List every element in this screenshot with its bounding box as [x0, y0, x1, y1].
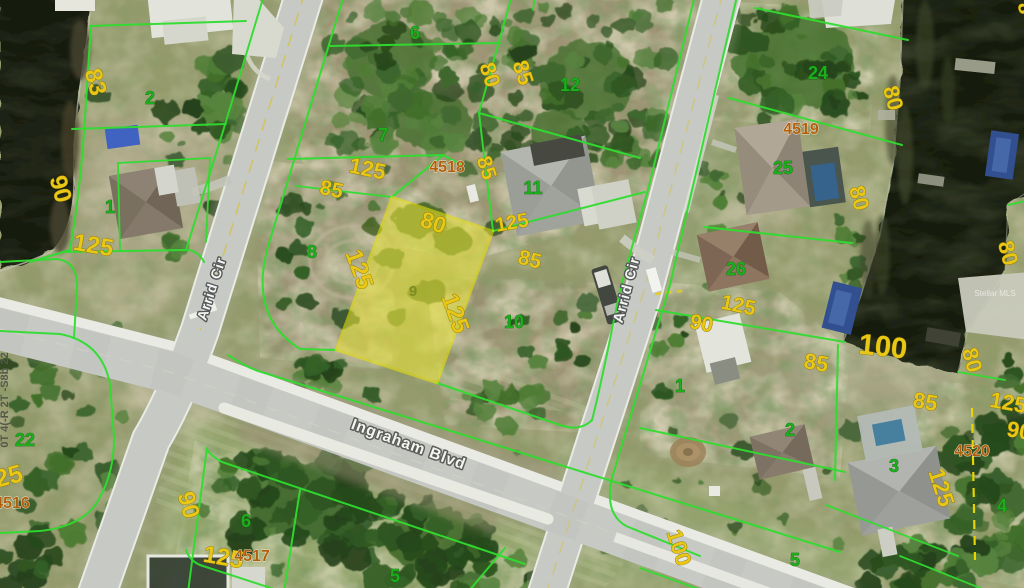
svg-text:4519: 4519	[783, 121, 819, 138]
svg-text:6: 6	[241, 511, 251, 531]
svg-text:11: 11	[523, 178, 542, 198]
svg-text:26: 26	[726, 259, 746, 279]
svg-text:7: 7	[378, 125, 388, 145]
svg-text:10: 10	[504, 312, 524, 332]
svg-text:2: 2	[145, 88, 155, 108]
svg-text:25: 25	[773, 158, 793, 178]
svg-text:Stellar MLS: Stellar MLS	[974, 289, 1015, 298]
svg-text:0T 4(-R 2T -S8b 22: 0T 4(-R 2T -S8b 22	[0, 352, 11, 447]
svg-text:100: 100	[857, 329, 908, 366]
svg-text:2: 2	[785, 420, 795, 440]
svg-text:85: 85	[802, 348, 830, 377]
svg-text:24: 24	[808, 63, 828, 83]
svg-text:1: 1	[105, 197, 115, 217]
svg-text:5: 5	[790, 550, 800, 570]
svg-text:3: 3	[889, 456, 899, 476]
svg-text:12: 12	[560, 75, 580, 95]
svg-text:6: 6	[410, 23, 420, 43]
svg-text:85: 85	[911, 387, 939, 416]
svg-text:90: 90	[688, 310, 716, 337]
svg-text:9: 9	[409, 283, 417, 300]
svg-text:4520: 4520	[954, 443, 990, 460]
svg-text:4517: 4517	[234, 548, 270, 565]
svg-text:90: 90	[1005, 416, 1024, 445]
svg-text:4518: 4518	[429, 159, 465, 176]
svg-text:5: 5	[390, 566, 400, 586]
svg-text:4: 4	[997, 496, 1007, 516]
svg-text:4516: 4516	[0, 495, 30, 512]
svg-text:8: 8	[307, 242, 317, 262]
svg-text:22: 22	[15, 430, 35, 450]
svg-text:1: 1	[675, 376, 685, 396]
